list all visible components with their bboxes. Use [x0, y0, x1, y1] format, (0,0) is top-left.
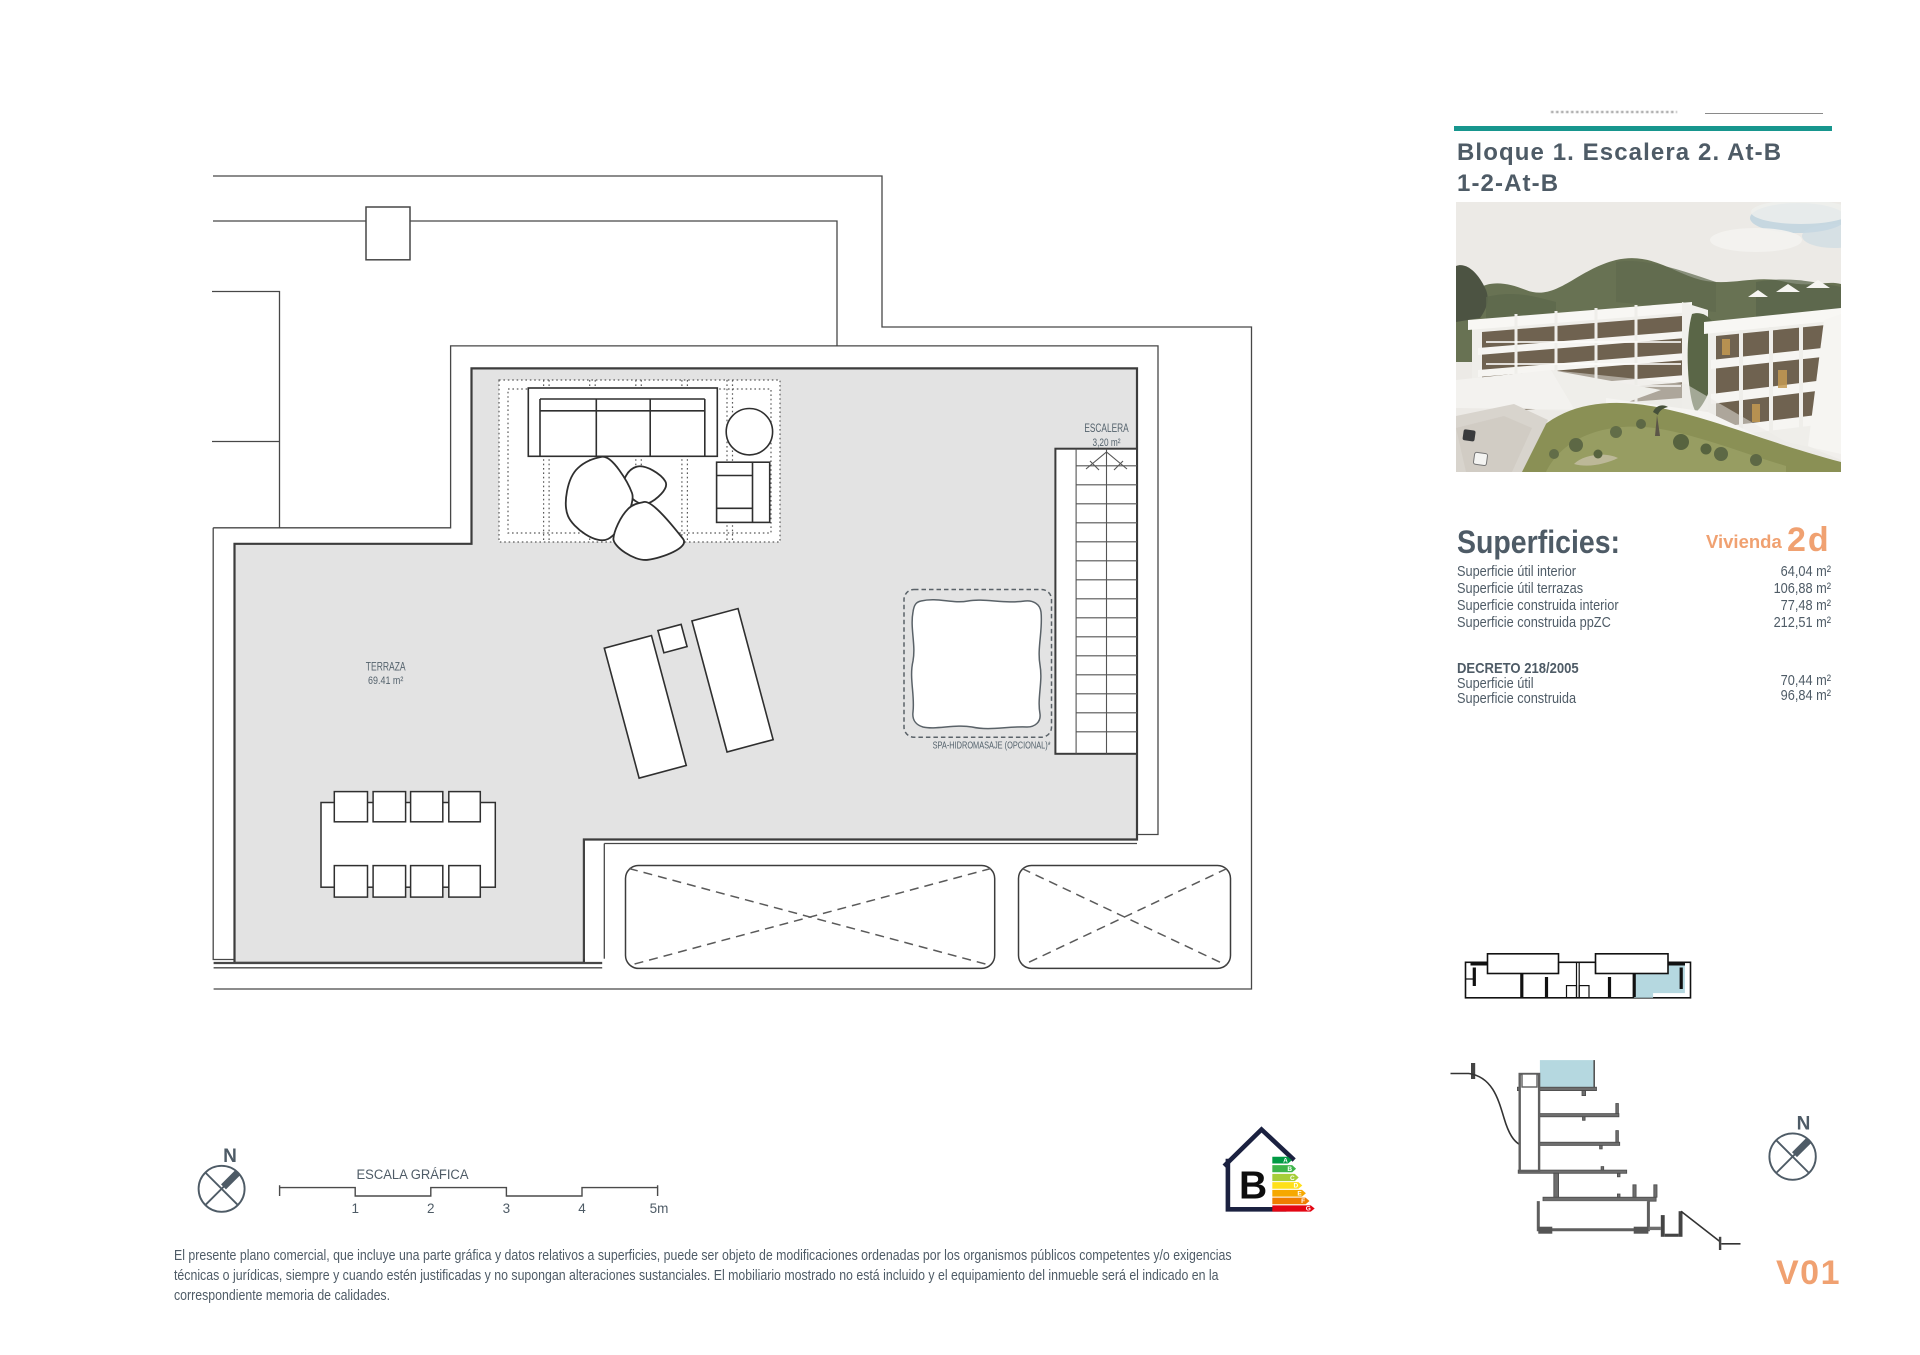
- svg-text:ESCALA GRÁFICA: ESCALA GRÁFICA: [357, 1167, 469, 1182]
- svg-text:SPA-HIDROMASAJE (OPCIONAL)*: SPA-HIDROMASAJE (OPCIONAL)*: [933, 740, 1051, 752]
- svg-text:D: D: [1294, 1183, 1299, 1190]
- svg-text:A: A: [1283, 1158, 1288, 1165]
- svg-text:TERRAZA: TERRAZA: [366, 662, 406, 674]
- svg-text:2: 2: [427, 1201, 435, 1216]
- svg-text:5m: 5m: [650, 1201, 669, 1216]
- svg-text:C: C: [1290, 1175, 1295, 1182]
- svg-text:E: E: [1297, 1190, 1302, 1197]
- svg-text:N: N: [1797, 1114, 1811, 1135]
- svg-text:4: 4: [578, 1201, 586, 1216]
- svg-text:3,20 m²: 3,20 m²: [1093, 437, 1121, 449]
- svg-text:G: G: [1306, 1205, 1311, 1212]
- svg-text:3: 3: [503, 1201, 511, 1216]
- svg-text:F: F: [1301, 1198, 1305, 1205]
- svg-text:B: B: [1239, 1165, 1267, 1208]
- svg-text:69.41 m²: 69.41 m²: [368, 675, 404, 687]
- svg-text:ESCALERA: ESCALERA: [1084, 423, 1129, 435]
- svg-text:N: N: [223, 1146, 237, 1167]
- svg-text:B: B: [1287, 1166, 1292, 1173]
- svg-text:1: 1: [351, 1201, 359, 1216]
